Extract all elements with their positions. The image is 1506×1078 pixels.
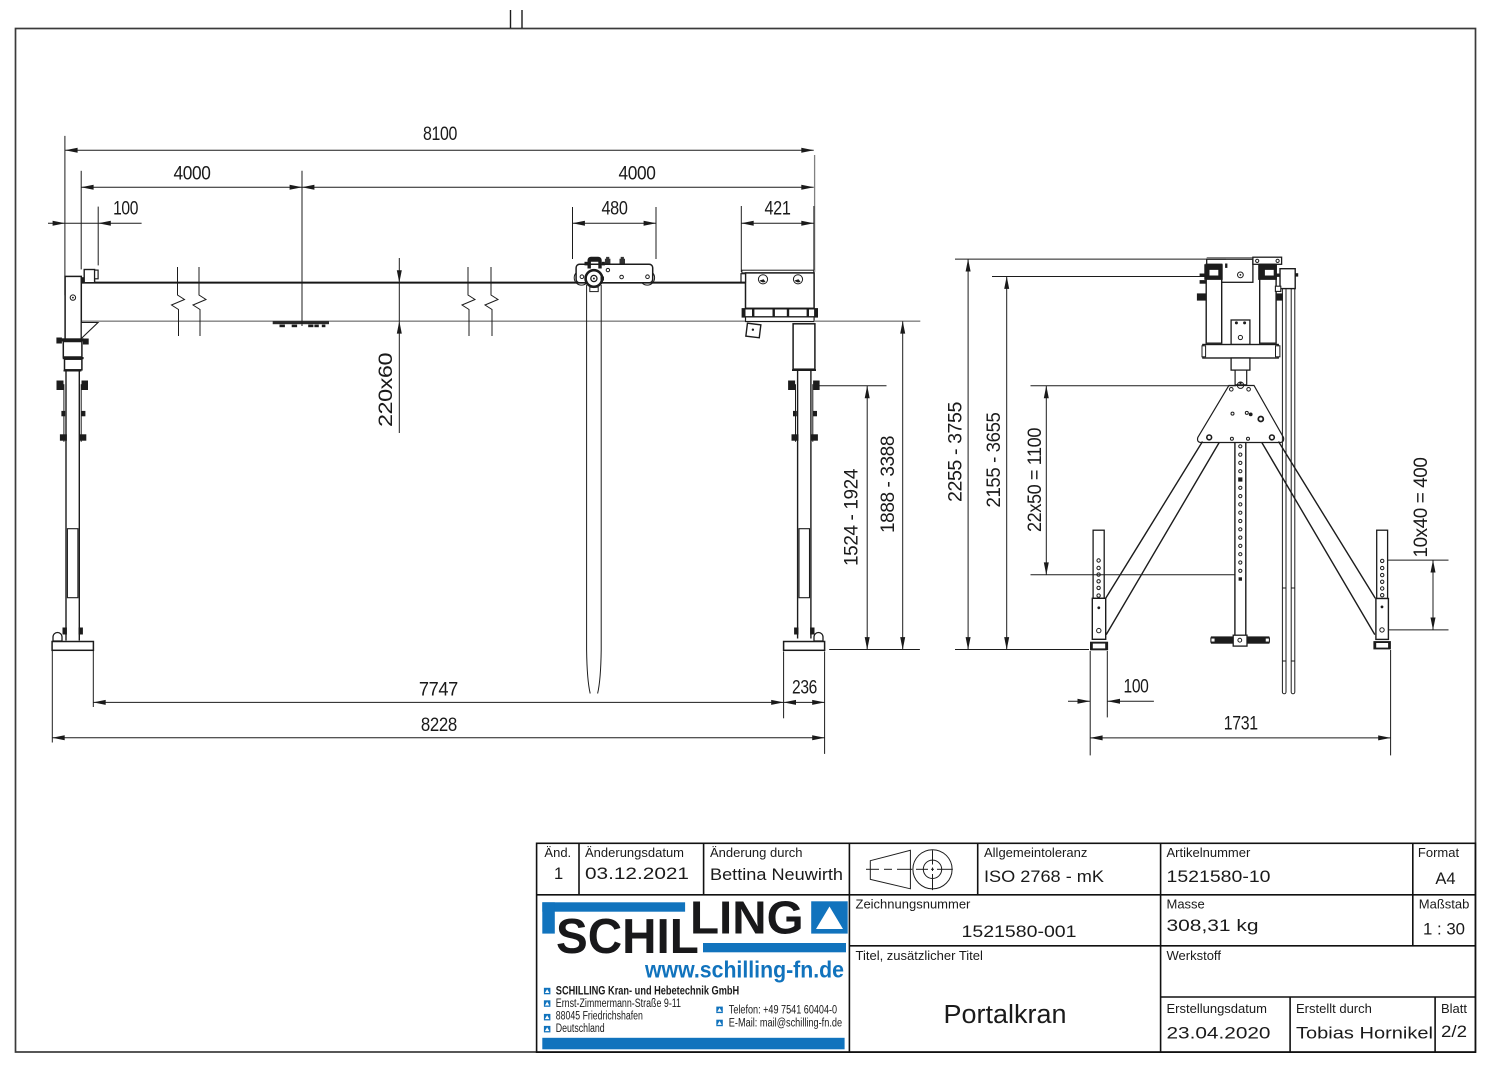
svg-text:220x60: 220x60 [376,353,397,427]
svg-text:236: 236 [792,678,817,699]
svg-text:Ernst-Zimmermann-Straße 9-11: Ernst-Zimmermann-Straße 9-11 [556,998,681,1010]
svg-text:1524 - 1924: 1524 - 1924 [842,468,863,566]
svg-text:4000: 4000 [174,164,211,185]
svg-text:22x50 = 1100: 22x50 = 1100 [1025,428,1046,532]
svg-text:SCHILLING Kran- und Hebetechni: SCHILLING Kran- und Hebetechnik GmbH [556,986,739,998]
svg-text:10x40 = 400: 10x40 = 400 [1411,458,1432,558]
svg-text:Änd.: Änd. [544,845,571,860]
svg-text:8100: 8100 [423,124,457,145]
svg-text:A4: A4 [1435,870,1455,888]
svg-text:1 : 30: 1 : 30 [1423,921,1465,939]
svg-text:2/2: 2/2 [1441,1023,1467,1041]
svg-text:7747: 7747 [419,680,458,701]
svg-text:Erstellt durch: Erstellt durch [1296,1001,1372,1016]
svg-text:1521580-10: 1521580-10 [1167,868,1271,886]
svg-text:Blatt: Blatt [1441,1001,1467,1016]
svg-text:LING: LING [690,892,804,944]
svg-text:Bettina Neuwirth: Bettina Neuwirth [710,866,843,884]
svg-text:E-Mail: mail@schilling-fn.de: E-Mail: mail@schilling-fn.de [729,1017,842,1029]
svg-text:Tobias Hornikel: Tobias Hornikel [1296,1025,1433,1043]
svg-text:8228: 8228 [421,715,457,736]
svg-text:100: 100 [1124,677,1149,698]
svg-text:1888 - 3388: 1888 - 3388 [878,436,899,533]
svg-text:1521580-001: 1521580-001 [962,923,1077,941]
svg-text:Titel, zusätzlicher Titel: Titel, zusätzlicher Titel [856,948,984,963]
svg-text:Deutschland: Deutschland [556,1023,605,1035]
svg-text:Portalkran: Portalkran [944,1001,1067,1029]
svg-text:88045 Friedrichshafen: 88045 Friedrichshafen [556,1010,643,1022]
svg-text:Format: Format [1418,845,1460,860]
svg-text:308,31 kg: 308,31 kg [1167,917,1259,935]
svg-text:2255 - 3755: 2255 - 3755 [946,402,967,502]
svg-text:www.schilling-fn.de: www.schilling-fn.de [644,957,844,983]
svg-text:03.12.2021: 03.12.2021 [585,865,689,883]
svg-text:Werkstoff: Werkstoff [1167,948,1222,963]
svg-text:100: 100 [113,199,138,220]
svg-text:Änderungsdatum: Änderungsdatum [585,845,684,860]
svg-text:23.04.2020: 23.04.2020 [1167,1025,1271,1043]
svg-text:Telefon: +49 7541 60404-0: Telefon: +49 7541 60404-0 [729,1004,837,1016]
svg-text:Zeichnungsnummer: Zeichnungsnummer [856,897,972,912]
svg-text:421: 421 [765,199,791,220]
svg-text:Allgemeintoleranz: Allgemeintoleranz [984,845,1087,860]
svg-text:Artikelnummer: Artikelnummer [1167,845,1251,860]
svg-text:Masse: Masse [1167,897,1205,912]
svg-text:ISO 2768 - mK: ISO 2768 - mK [984,868,1104,886]
svg-text:1: 1 [554,865,563,883]
svg-text:4000: 4000 [619,164,656,185]
svg-text:Änderung durch: Änderung durch [710,845,803,860]
svg-text:Erstellungsdatum: Erstellungsdatum [1167,1001,1267,1016]
svg-text:Maßstab: Maßstab [1419,897,1470,912]
svg-text:2155 - 3655: 2155 - 3655 [984,413,1005,508]
svg-text:480: 480 [602,199,628,220]
svg-text:1731: 1731 [1224,714,1258,735]
